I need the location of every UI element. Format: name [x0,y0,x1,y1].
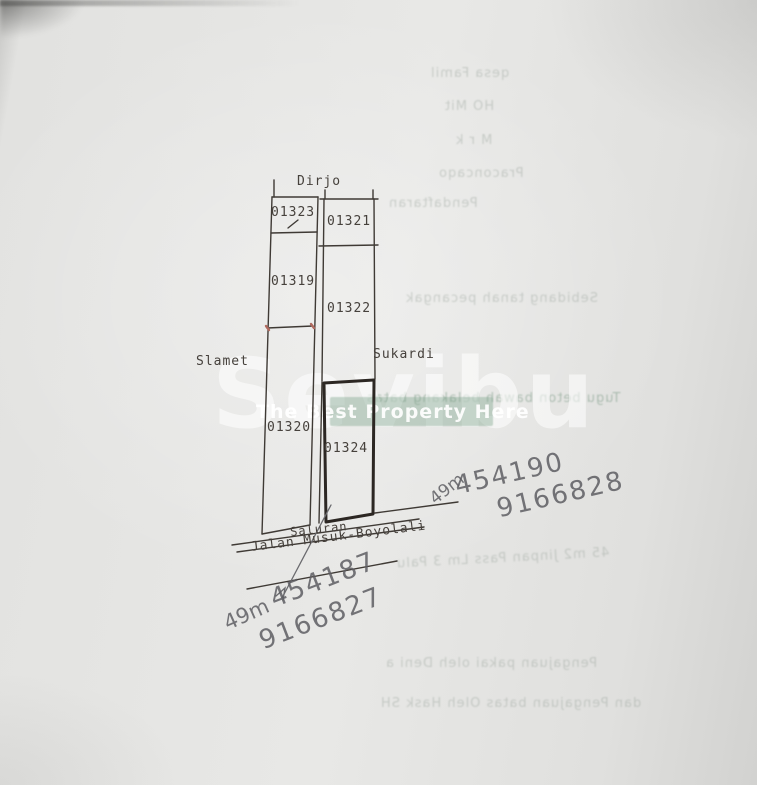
boundary-extension-line [375,502,458,513]
neighbor-label-right: Sukardi [373,347,435,362]
right-strip-left-edge [322,199,324,381]
left-strip-left-edge [262,197,272,534]
right-strip-left-edge-lower [319,382,322,523]
parcel-divider [271,232,317,233]
parcel-number: 01322 [327,301,371,316]
parcel-number-highlighted: 01324 [324,441,368,456]
parcel-number: 01323 [271,205,315,220]
parcel-divider [319,245,378,246]
parcel-divider [267,326,313,328]
parcel-number: 01320 [267,420,311,435]
parcel-number: 01319 [271,274,315,289]
parcel-sketch-linework [0,0,757,785]
neighbor-label-left: Slamet [196,354,249,369]
scanned-land-sketch-page: qesa Famil HO Mit M r k Praconcaqo Penda… [0,0,757,785]
neighbor-label-top: Dirjo [297,174,341,189]
survey-tick [311,324,314,328]
left-strip-right-edge [310,197,318,525]
parcel-number: 01321 [327,214,371,229]
parcel-01323-slash-mark [288,220,298,228]
